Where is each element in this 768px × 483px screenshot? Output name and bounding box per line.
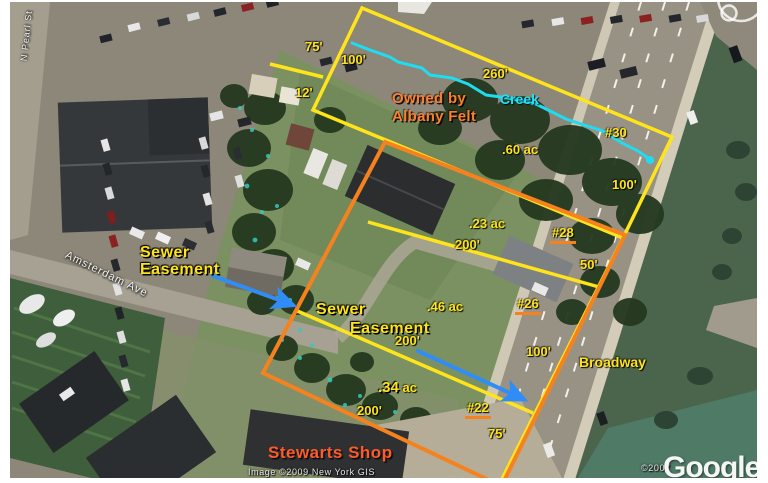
imagery-attribution: Image ©2009 New York GIS [248, 468, 375, 477]
creek-label: Creek [500, 92, 539, 107]
sewer-easement-2-line1: Sewer [316, 302, 366, 319]
dimension-75-top: 75' [305, 40, 323, 54]
dimension-200-b: 200' [395, 334, 420, 348]
owner-line2: Albany Felt [392, 108, 476, 126]
area-60ac: .60 ac [502, 143, 538, 157]
dimension-75-bottom: 75' [488, 427, 506, 441]
dimension-100-top: 100' [341, 53, 366, 67]
dimension-260-creek: 260' [483, 67, 508, 81]
dimension-50: 50' [580, 258, 598, 272]
owner-line1: Owned by [392, 90, 476, 108]
dimension-100-mid: 100' [526, 345, 551, 359]
dimension-12-jog: 12' [295, 86, 313, 100]
lot-number-30: #30 [603, 126, 629, 141]
stewarts-shop-label: Stewarts Shop [268, 444, 393, 462]
sewer-easement-1-line2: Easement [140, 262, 220, 279]
dimension-200-a: 200' [455, 238, 480, 252]
satellite-map[interactable]: N Pearl St 75' 100' 12' 260' Owned by Al… [10, 2, 757, 478]
dimension-100-right: 100' [612, 178, 637, 192]
area-34ac: .34 ac [378, 380, 417, 396]
area-34-number: .34 [378, 379, 399, 396]
dimension-200-c: 200' [357, 404, 382, 418]
lot-number-26: #26 [515, 297, 541, 315]
owner-annotation: Owned by Albany Felt [392, 90, 476, 126]
street-label-broadway: Broadway [579, 355, 646, 370]
area-23ac: .23 ac [469, 217, 505, 231]
google-watermark: Google [663, 452, 757, 478]
area-34-unit: ac [402, 380, 416, 395]
lot-number-28: #28 [550, 226, 576, 244]
lot-number-22: #22 [465, 401, 491, 419]
area-46ac: .46 ac [427, 300, 463, 314]
sewer-easement-1-line1: Sewer [140, 245, 220, 262]
sewer-easement-label-1: Sewer Easement [140, 245, 220, 279]
aerial-imagery [10, 2, 757, 478]
